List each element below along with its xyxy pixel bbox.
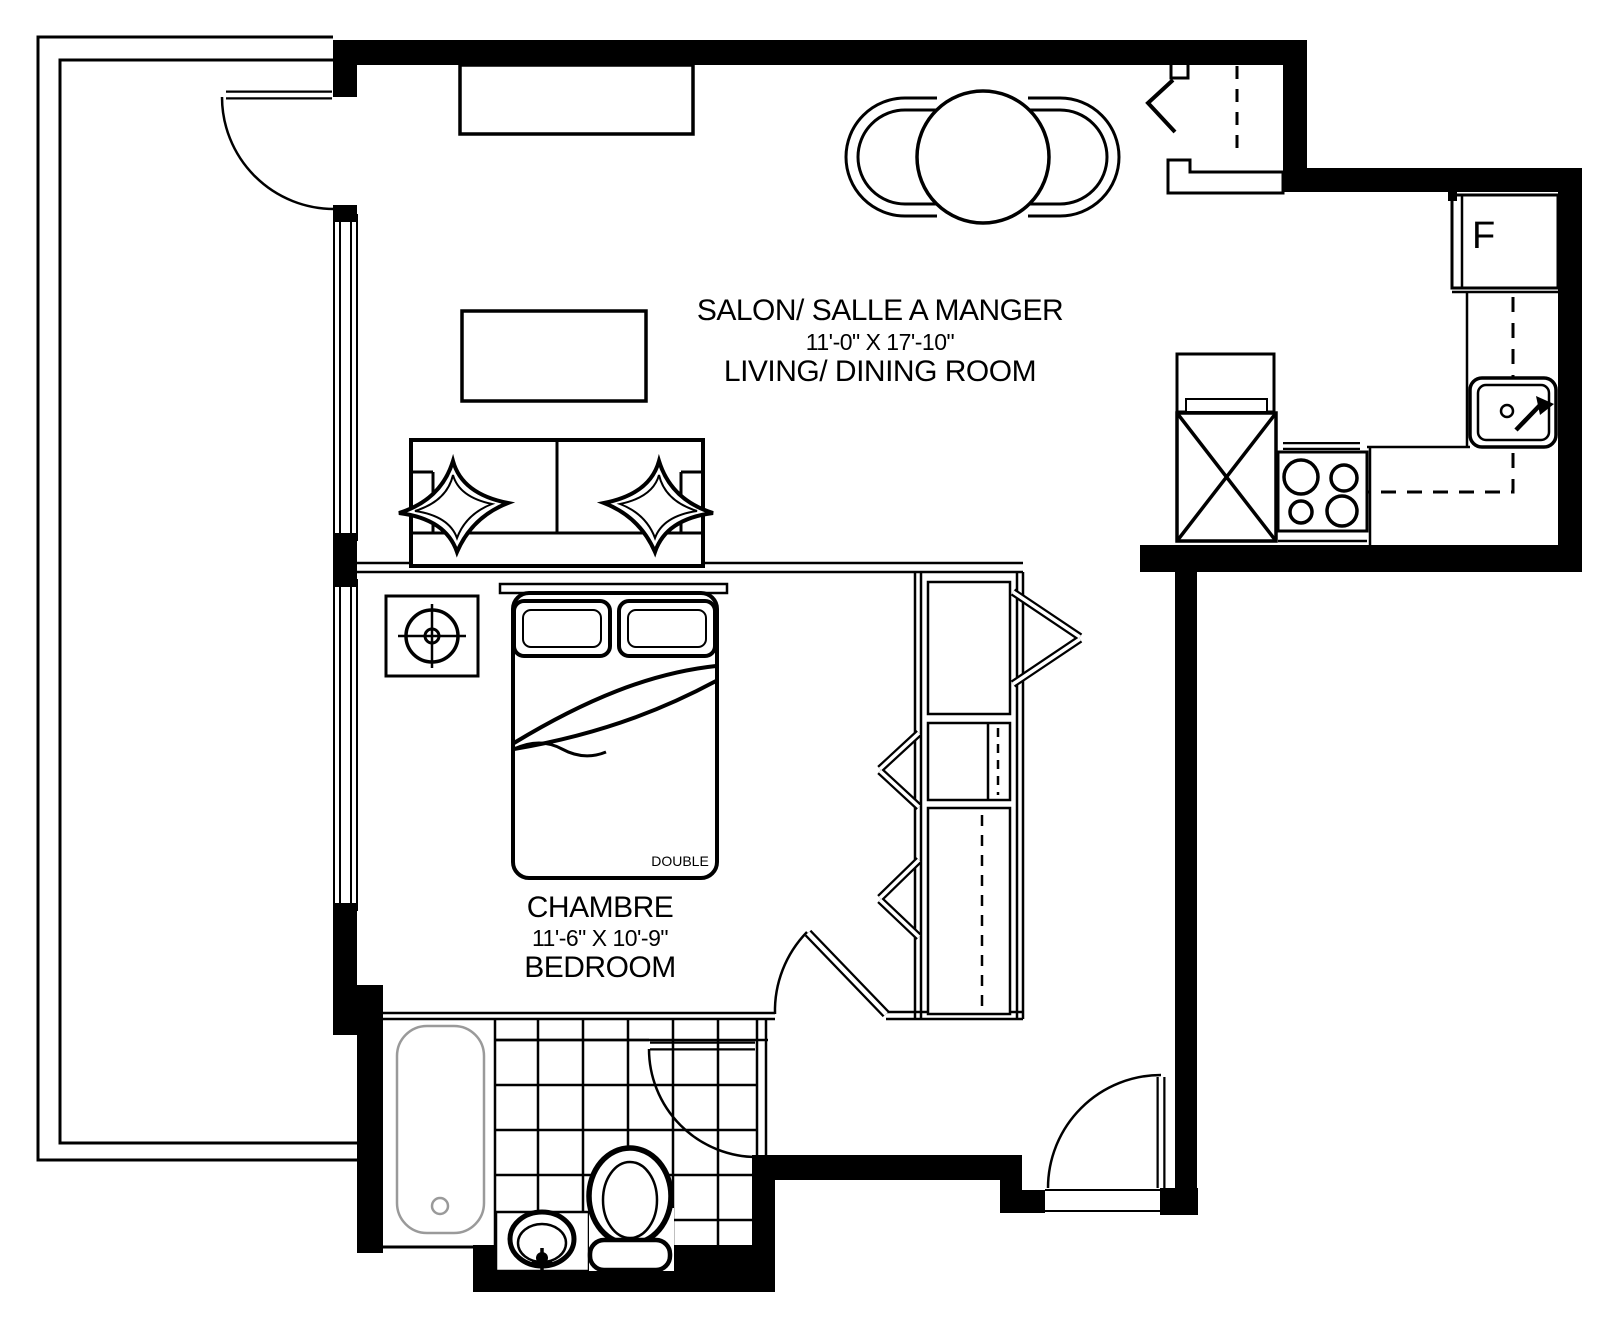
fridge [1448,192,1558,288]
floor-plan: DOUBLE [0,0,1622,1334]
bedroom-label-fr: CHAMBRE [527,891,674,924]
sofa [399,440,713,566]
kitchen-sink [1470,378,1556,447]
west-window-bedroom [334,580,357,910]
closet-top-compartment [928,582,1010,714]
living-room-dimensions: 11'-0" X 17'-10" [806,329,955,355]
entry-threshold [1045,1188,1160,1213]
sideboard [460,65,693,134]
bedroom-label-en: BEDROOM [524,951,676,984]
plan-background [0,0,1622,1334]
vanity-sink [496,1212,589,1271]
kitchen-cart [1177,354,1274,412]
floor-plan-drawing: DOUBLE [0,0,1622,1334]
coffee-table [462,311,646,401]
bedroom-dimensions: 11'-6" X 10'-9" [532,925,668,951]
dishwasher [1177,413,1276,541]
stove [1278,446,1367,531]
fridge-hinge [1448,192,1457,201]
closet-bottom-compartment [928,808,1010,1014]
fridge-label: F [1472,215,1495,257]
dining-table [917,91,1049,223]
west-window-living [334,215,357,540]
bathtub [397,1026,484,1233]
toilet [589,1148,674,1271]
living-room-label-fr: SALON/ SALLE A MANGER [697,294,1063,327]
living-room-label-en: LIVING/ DINING ROOM [724,355,1036,388]
bed: DOUBLE [500,584,727,878]
toilet-tank [590,1240,670,1270]
bed-size-label: DOUBLE [651,853,709,869]
